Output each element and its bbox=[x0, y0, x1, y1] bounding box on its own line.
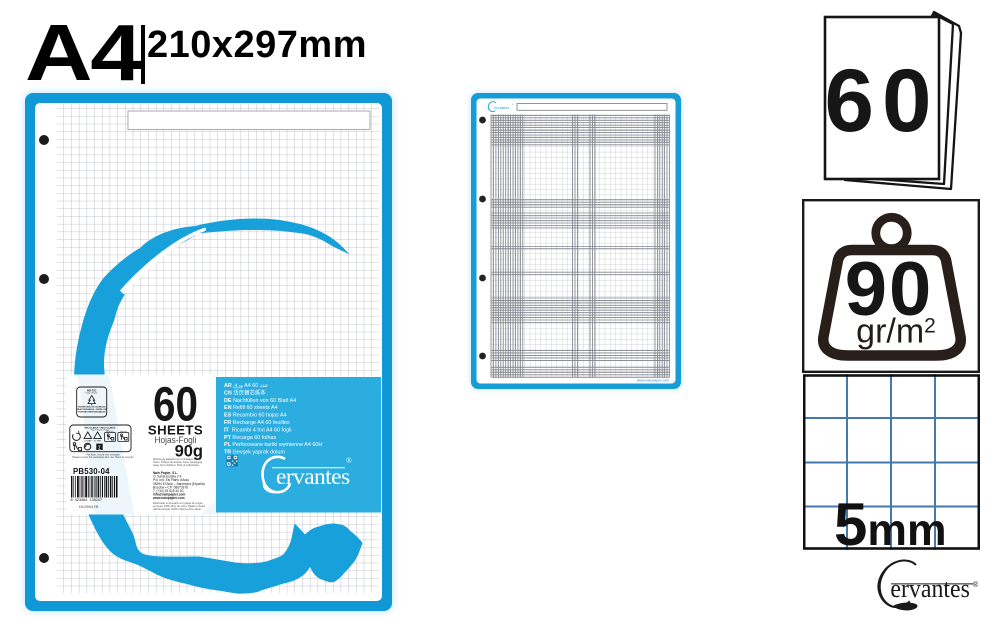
svg-text:PB530-04: PB530-04 bbox=[73, 467, 110, 476]
svg-text:away from children. Risk of su: away from children. Risk of suffocation. bbox=[153, 463, 200, 467]
svg-text:ES Recambio 60 hojas A4: ES Recambio 60 hojas A4 bbox=[224, 413, 287, 419]
svg-text:PT Recarga 60 folhas: PT Recarga 60 folhas bbox=[224, 435, 276, 441]
svg-text:Please recycle this packaging: Please recycle this packaging after use.… bbox=[73, 456, 134, 459]
svg-text:with European 100% chlorine-fr: with European 100% chlorine-free paper. bbox=[153, 507, 202, 511]
svg-text:www.nainpapier.com: www.nainpapier.com bbox=[152, 496, 185, 500]
svg-text:Paper | Papier: Paper | Papier bbox=[86, 392, 98, 395]
svg-text:®: ® bbox=[346, 456, 352, 465]
svg-text:ervantes: ervantes bbox=[494, 105, 510, 110]
svg-text:EN Refill 60 sheets A4: EN Refill 60 sheets A4 bbox=[224, 405, 278, 411]
svg-text:60: 60 bbox=[825, 50, 940, 150]
svg-text:gr/m2: gr/m2 bbox=[856, 313, 936, 351]
svg-text:FR Recharge A4 60 feuilles: FR Recharge A4 60 feuilles bbox=[224, 420, 290, 426]
svg-text:CN 活页替芯纸本: CN 活页替芯纸本 bbox=[224, 388, 266, 396]
svg-text:∑: ∑ bbox=[98, 445, 101, 450]
svg-text:PL Perforowane kartki wymienne: PL Perforowane kartki wymienne A4 60H bbox=[224, 442, 322, 448]
svg-text:®: ® bbox=[512, 104, 514, 107]
svg-text:22 PAP: 22 PAP bbox=[94, 440, 102, 443]
svg-text:DL09047B: DL09047B bbox=[79, 504, 98, 509]
svg-text:FUENTES RESPONSABLES: FUENTES RESPONSABLES bbox=[78, 410, 106, 413]
svg-text:21 PAP: 21 PAP bbox=[84, 440, 92, 443]
svg-text:AR ورق A4 عدد 60: AR ورق A4 عدد 60 bbox=[224, 383, 268, 389]
svg-text:IT Ricambi 4 fori A4 60 fogli: IT Ricambi 4 fori A4 60 fogli bbox=[224, 427, 291, 433]
svg-text:ervantes: ervantes bbox=[890, 574, 970, 603]
svg-text:®: ® bbox=[973, 580, 979, 589]
svg-text:8 423464 135107: 8 423464 135107 bbox=[71, 498, 103, 502]
svg-text:www.nainpaper.com: www.nainpaper.com bbox=[637, 379, 669, 383]
svg-text:Recicla: Recicla bbox=[120, 431, 127, 433]
svg-text:DE Nachfüllen von 60 Blatt A4: DE Nachfüllen von 60 Blatt A4 bbox=[224, 398, 296, 404]
svg-text:TR Gevşek yaprak dolum: TR Gevşek yaprak dolum bbox=[224, 450, 285, 456]
svg-text:A SOLO: A SOLO bbox=[107, 430, 114, 433]
